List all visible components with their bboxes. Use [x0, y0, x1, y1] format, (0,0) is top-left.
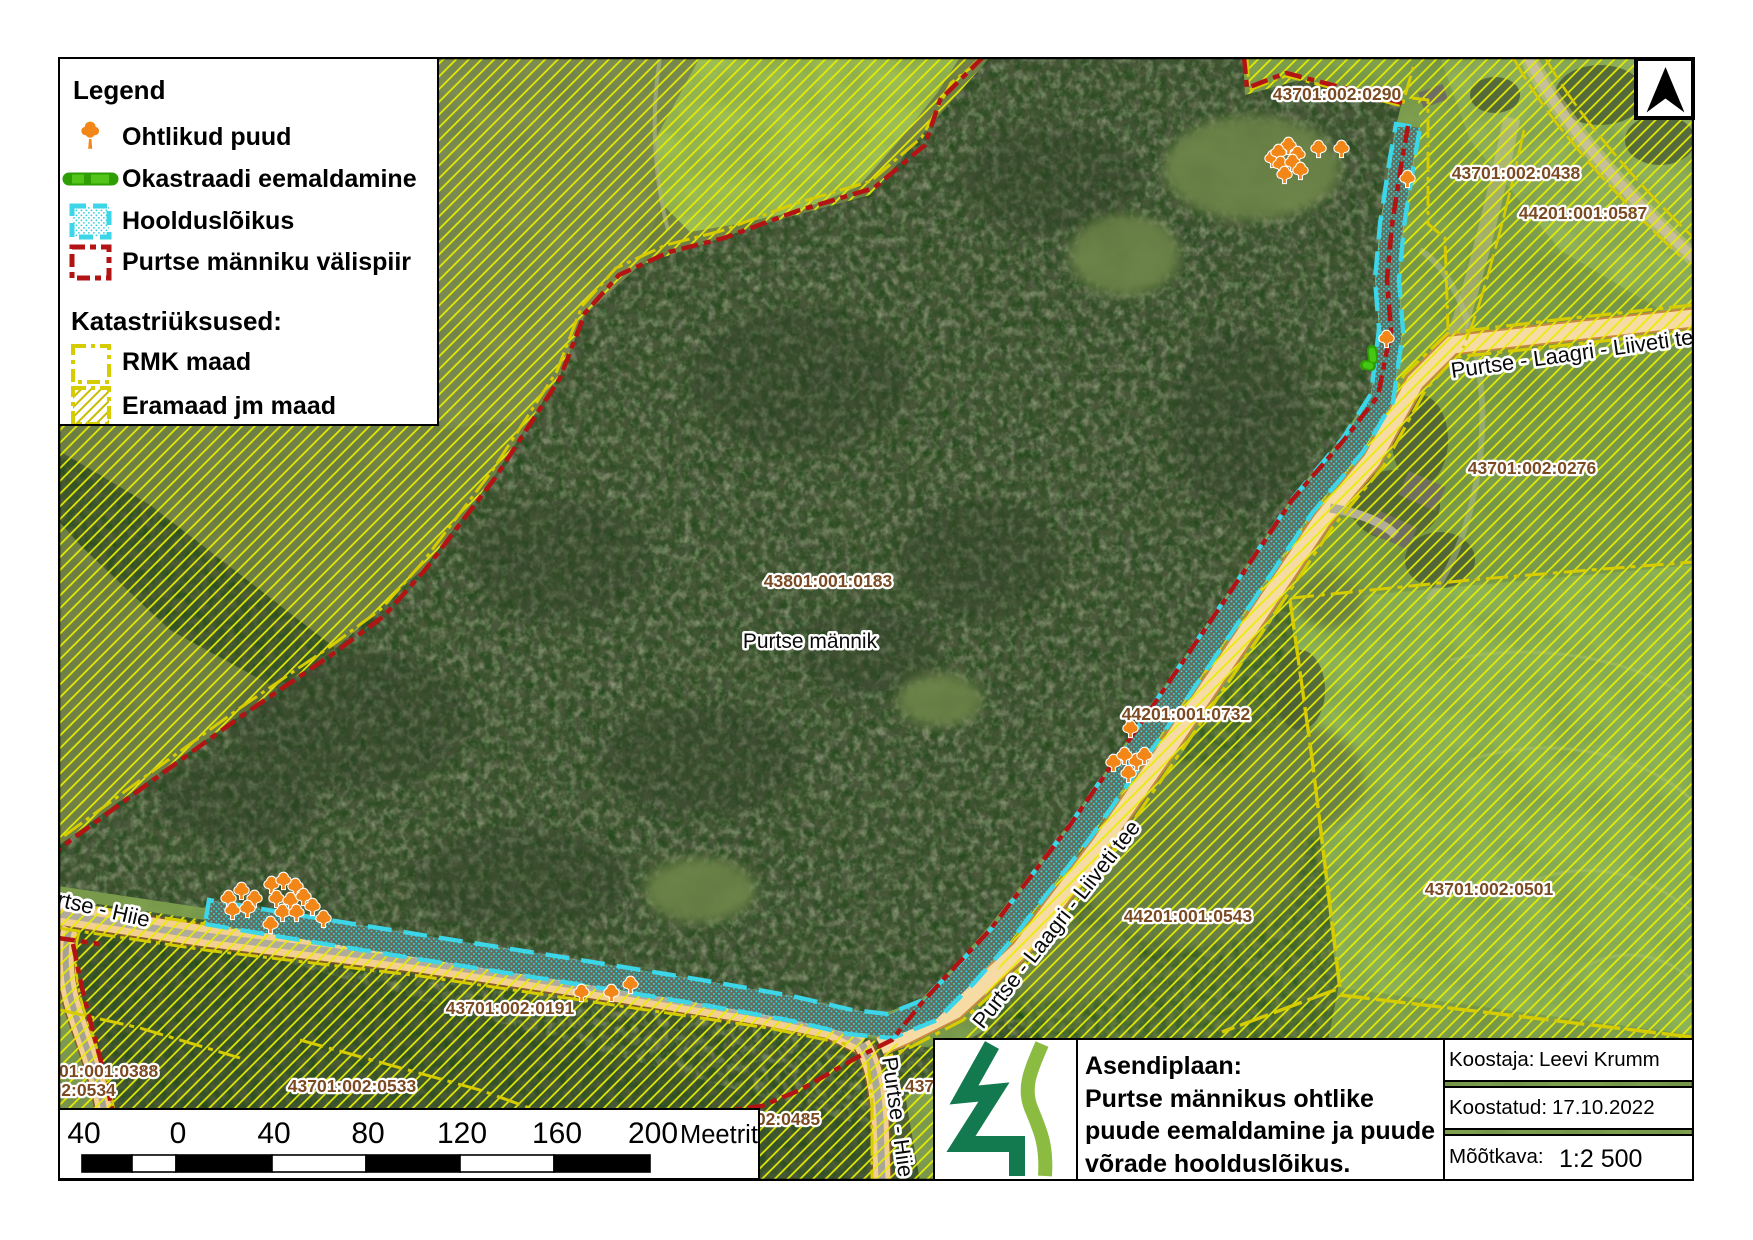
- svg-text:40: 40: [67, 1117, 100, 1150]
- svg-text:43701:002:0438: 43701:002:0438: [1452, 163, 1581, 183]
- svg-text:Purtse männik: Purtse männik: [743, 630, 878, 653]
- svg-text:43801:001:0183: 43801:001:0183: [764, 571, 893, 591]
- svg-text:Katastriüksused:: Katastriüksused:: [71, 306, 282, 336]
- svg-text:0: 0: [170, 1117, 187, 1150]
- svg-text:43701:002:0501: 43701:002:0501: [1425, 879, 1554, 899]
- svg-text:Okastraadi eemaldamine: Okastraadi eemaldamine: [122, 165, 417, 193]
- svg-text:80: 80: [351, 1117, 384, 1150]
- svg-text:Hoolduslõikus: Hoolduslõikus: [122, 207, 294, 235]
- svg-text:43701:002:0191: 43701:002:0191: [446, 998, 575, 1018]
- svg-text:44201:001:0732: 44201:001:0732: [1122, 704, 1251, 724]
- svg-text:40: 40: [257, 1117, 290, 1150]
- svg-text:160: 160: [532, 1117, 582, 1150]
- svg-text:RMK maad: RMK maad: [122, 348, 251, 376]
- svg-text:01:001:0388: 01:001:0388: [59, 1061, 159, 1081]
- svg-text:43701:002:0533: 43701:002:0533: [288, 1076, 417, 1096]
- svg-text:44201:001:0587: 44201:001:0587: [1519, 203, 1647, 223]
- svg-text:43701:002:0290: 43701:002:0290: [1273, 84, 1402, 104]
- svg-text:Purtse männiku välispiir: Purtse männiku välispiir: [122, 248, 411, 276]
- svg-text:Legend: Legend: [73, 75, 165, 105]
- svg-text:Meetrit: Meetrit: [680, 1121, 758, 1149]
- svg-text:43701:002:0276: 43701:002:0276: [1468, 458, 1597, 478]
- svg-text:120: 120: [437, 1117, 487, 1150]
- svg-text:437: 437: [905, 1076, 934, 1096]
- svg-text:Ohtlikud puud: Ohtlikud puud: [122, 123, 291, 151]
- svg-text::002:0534: :002:0534: [58, 1080, 116, 1100]
- svg-text:200: 200: [628, 1117, 678, 1150]
- svg-text:02:0485: 02:0485: [756, 1109, 820, 1129]
- svg-text:Eramaad jm maad: Eramaad jm maad: [122, 392, 336, 420]
- svg-text:44201:001:0543: 44201:001:0543: [1124, 906, 1253, 926]
